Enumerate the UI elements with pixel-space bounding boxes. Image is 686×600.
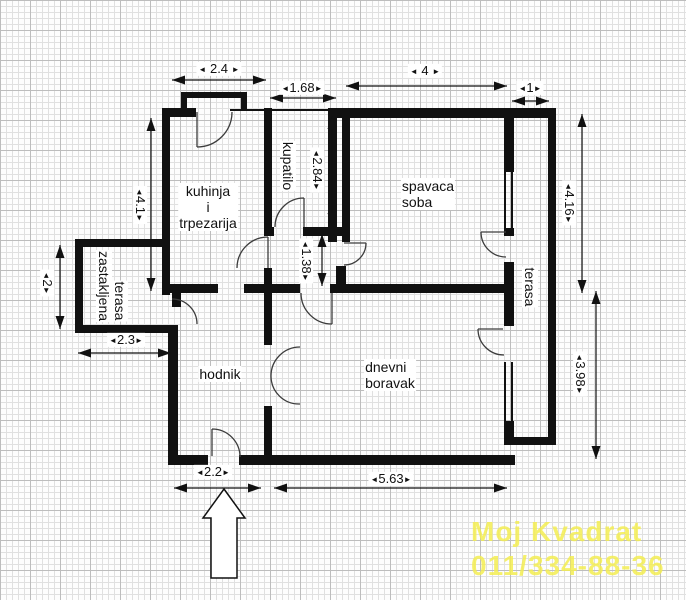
dim-label-bedroom-width: ◄ 4 ► xyxy=(408,64,442,78)
dim-value: 2.3 xyxy=(117,332,135,347)
room-label-glazed-terrace-line1: zastakljena xyxy=(96,250,112,322)
room-label-glazed-terrace-line2: terasa xyxy=(112,281,128,322)
dim-value: 4 xyxy=(421,63,428,78)
room-label-line: kuhinja xyxy=(179,183,237,199)
door-bathroom xyxy=(275,198,304,227)
dim-label-glazed-terrace-width: ◄2.3► xyxy=(107,333,145,347)
room-label-hallway: hodnik xyxy=(198,366,241,382)
dim-value: 2.2 xyxy=(204,464,222,479)
wall-south-bedroom xyxy=(330,284,514,293)
wall-bathroom-left xyxy=(264,108,272,236)
dim-arrow-left-icon: ◄ xyxy=(198,65,206,74)
dim-arrow-right-icon: ► xyxy=(432,67,440,76)
dim-arrow-left-icon: ◄ xyxy=(301,240,310,248)
dim-arrow-left-icon: ◄ xyxy=(196,468,204,477)
room-label-line: trpezarija xyxy=(179,215,237,231)
room-label-line: i xyxy=(179,199,237,215)
wall-bedroom-left xyxy=(342,108,350,242)
wall-hall-left xyxy=(168,325,178,465)
dim-label-living-room-width: ◄5.63► xyxy=(368,472,413,486)
dim-arrow-left-icon: ◄ xyxy=(109,336,117,345)
wall-south-kitchen xyxy=(162,284,218,293)
wall-kitchen-top xyxy=(162,108,196,117)
wall-glazed-terrace-top xyxy=(75,239,166,247)
dim-value: 2.84 xyxy=(310,157,325,182)
watermark-brand: Moj Kvadrat xyxy=(471,516,642,548)
dim-label-kitchen-height: ◄4.1► xyxy=(133,186,147,224)
dim-label-bathroom-height: ◄2.84► xyxy=(310,147,324,192)
entrance-arrow-icon xyxy=(203,489,245,578)
dim-arrow-left-icon: ◄ xyxy=(564,182,573,190)
wall-terrace-right xyxy=(548,108,556,445)
door-kitchen-north xyxy=(197,112,232,147)
dim-arrow-right-icon: ► xyxy=(135,214,144,222)
wall-top-right xyxy=(336,108,556,118)
door-bedroom-terrace xyxy=(481,232,506,257)
room-label-kitchen: kuhinja i trpezarija xyxy=(178,183,238,231)
floor-plan: ◄ 2.4 ► ◄1.68► ◄ 4 ► ◄1► ◄2.3► ◄2.2► ◄5.… xyxy=(0,0,686,600)
watermark-phone: 011/334-88-36 xyxy=(471,550,665,582)
dim-value: 4.1 xyxy=(133,196,148,214)
dim-label-glazed-terrace-height: ◄2► xyxy=(40,269,54,296)
dim-arrow-right-icon: ► xyxy=(315,84,323,93)
dim-value: 1.68 xyxy=(289,80,314,95)
wall-bottom-left xyxy=(168,455,208,465)
dim-arrow-right-icon: ► xyxy=(222,468,230,477)
dim-label-entrance-width: ◄2.2► xyxy=(194,465,232,479)
dim-arrow-right-icon: ► xyxy=(404,475,412,484)
dim-value: 4.16 xyxy=(562,190,577,215)
dim-arrow-left-icon: ◄ xyxy=(42,271,51,279)
room-label-bedroom: spavaca soba xyxy=(401,178,455,210)
wall-living-right-upper xyxy=(504,293,514,326)
door-living-terrace xyxy=(478,329,504,355)
door-living-north xyxy=(301,293,332,324)
dim-arrow-left-icon: ◄ xyxy=(370,475,378,484)
door-hall-living-double-swing xyxy=(271,347,300,404)
wall-kitchen-left xyxy=(162,108,170,295)
door-entrance xyxy=(212,429,240,457)
dim-arrow-right-icon: ► xyxy=(135,336,143,345)
room-label-line: spavaca xyxy=(402,178,454,194)
room-label-line: boravak xyxy=(365,375,415,391)
dim-arrow-right-icon: ► xyxy=(534,84,542,93)
room-label-living-room: dnevni boravak xyxy=(364,359,416,391)
wall-bottom-right xyxy=(239,455,515,465)
wall-niche-right xyxy=(241,92,247,111)
dim-arrow-right-icon: ► xyxy=(312,183,321,191)
wall-glazed-terrace-left xyxy=(75,239,83,333)
wall-hall-divider-upper xyxy=(264,268,272,345)
room-label-line: soba xyxy=(402,194,454,210)
dim-value: 3.98 xyxy=(573,361,588,386)
room-label-terrace: terasa xyxy=(522,267,538,308)
dim-label-terrace-width: ◄1► xyxy=(516,81,543,95)
door-bedroom xyxy=(344,243,366,265)
dim-label-right-side-upper: ◄4.16► xyxy=(562,180,576,225)
dim-value: 5.63 xyxy=(378,471,403,486)
dim-label-passage-height: ◄1.38► xyxy=(299,238,313,283)
wall-terrace-bottom xyxy=(504,437,556,445)
dim-label-kitchen-width: ◄ 2.4 ► xyxy=(196,62,241,76)
room-label-line: dnevni xyxy=(365,359,415,375)
door-kitchen-east xyxy=(237,237,268,268)
dim-value: 2.4 xyxy=(210,61,228,76)
dim-arrow-left-icon: ◄ xyxy=(281,84,289,93)
dim-arrow-right-icon: ► xyxy=(575,387,584,395)
dim-value: 1.38 xyxy=(299,248,314,273)
dim-arrow-right-icon: ► xyxy=(42,287,51,295)
dim-arrow-left-icon: ◄ xyxy=(312,149,321,157)
dim-label-right-side-lower: ◄3.98► xyxy=(573,351,587,396)
wall-bedroom-right-upper xyxy=(504,118,514,172)
dim-label-bathroom-width: ◄1.68► xyxy=(279,81,324,95)
wall-niche-top xyxy=(181,92,247,98)
dim-arrow-left-icon: ◄ xyxy=(575,353,584,361)
dim-arrow-left-icon: ◄ xyxy=(518,84,526,93)
wall-bathroom-bottom-stub xyxy=(264,227,274,236)
dim-arrow-right-icon: ► xyxy=(232,65,240,74)
dim-arrow-left-icon: ◄ xyxy=(135,188,144,196)
dim-arrow-right-icon: ► xyxy=(301,274,310,282)
dim-arrow-left-icon: ◄ xyxy=(410,67,418,76)
dim-arrow-right-icon: ► xyxy=(564,216,573,224)
room-label-bathroom: kupatilo xyxy=(280,141,296,191)
